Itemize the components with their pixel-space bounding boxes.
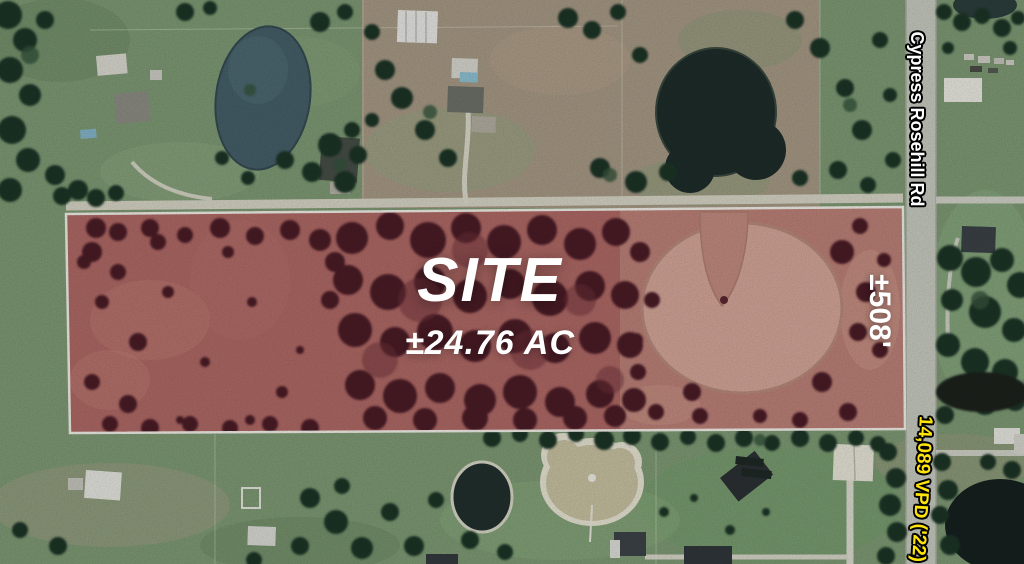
site-label: SITE (330, 250, 650, 312)
aerial-site-map: SITE ±24.76 AC ±508' Cypress Rosehill Rd… (0, 0, 1024, 564)
site-frontage-dimension: ±508' (862, 251, 896, 371)
road-name-label: Cypress Rosehill Rd (904, 29, 930, 209)
site-acreage-label: ±24.76 AC (330, 326, 650, 360)
